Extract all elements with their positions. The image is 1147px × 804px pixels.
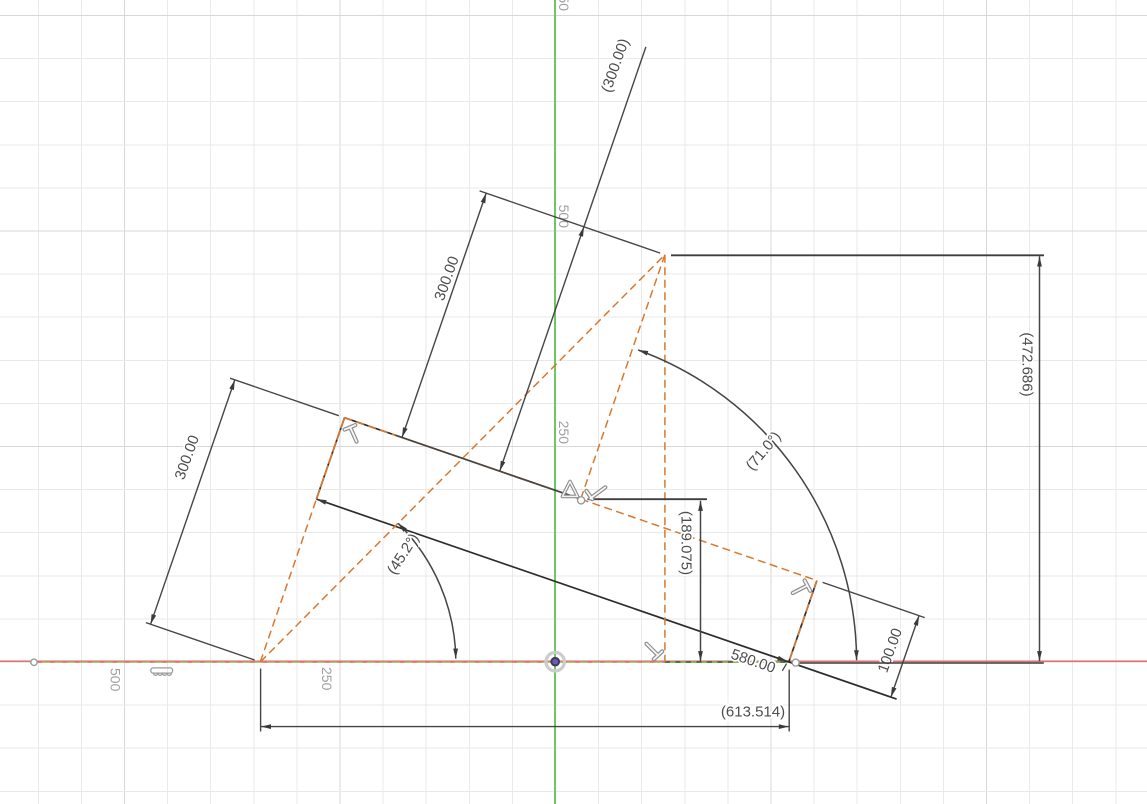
svg-text:(189.075): (189.075) <box>678 511 695 575</box>
svg-text:(472.686): (472.686) <box>1019 332 1036 396</box>
svg-text:500: 500 <box>556 205 572 229</box>
svg-text:750: 750 <box>556 0 572 11</box>
svg-text:250: 250 <box>556 421 572 445</box>
svg-text:(613.514): (613.514) <box>721 704 785 721</box>
svg-text:(71.0°): (71.0°) <box>743 428 785 474</box>
svg-text:300.00: 300.00 <box>431 254 462 303</box>
svg-text:(45.2°): (45.2°) <box>384 530 423 577</box>
svg-text:250: 250 <box>319 667 335 691</box>
svg-text:(300.00): (300.00) <box>598 36 633 94</box>
svg-text:500: 500 <box>108 668 124 692</box>
svg-text:300.00: 300.00 <box>172 433 203 482</box>
